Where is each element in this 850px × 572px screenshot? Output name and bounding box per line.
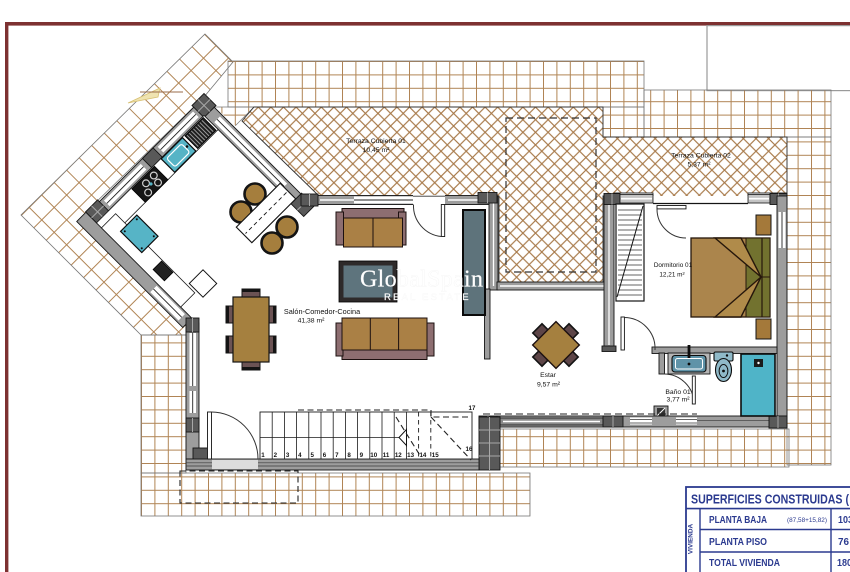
svg-text:180: 180 — [837, 558, 850, 569]
svg-text:Estar: Estar — [540, 372, 557, 379]
svg-text:8: 8 — [347, 452, 351, 459]
svg-text:PLANTA PISO: PLANTA PISO — [709, 537, 767, 548]
svg-text:11: 11 — [383, 452, 390, 459]
svg-text:9,57 m²: 9,57 m² — [537, 382, 561, 389]
svg-text:14: 14 — [419, 452, 426, 459]
svg-text:TOTAL VIVIENDA: TOTAL VIVIENDA — [709, 558, 780, 569]
svg-text:Dormitorio 01: Dormitorio 01 — [654, 262, 693, 269]
svg-text:1: 1 — [261, 452, 265, 459]
svg-text:7: 7 — [335, 452, 339, 459]
svg-text:12,21 m²: 12,21 m² — [659, 272, 684, 279]
svg-text:6: 6 — [323, 452, 327, 459]
svg-text:SUPERFICIES CONSTRUIDAS (: SUPERFICIES CONSTRUIDAS ( — [691, 492, 849, 507]
svg-text:5: 5 — [310, 452, 314, 459]
svg-text:Baño 01: Baño 01 — [665, 389, 691, 396]
svg-text:16: 16 — [466, 446, 473, 453]
svg-text:76: 76 — [838, 537, 849, 548]
svg-text:4: 4 — [298, 452, 302, 459]
svg-text:Terraza Cubierta 01: Terraza Cubierta 01 — [346, 138, 406, 145]
svg-text:13: 13 — [407, 452, 414, 459]
svg-text:5,37 m²: 5,37 m² — [687, 162, 711, 169]
svg-text:GlobalSpain: GlobalSpain — [360, 267, 483, 293]
svg-text:VIVIENDA: VIVIENDA — [688, 524, 695, 555]
svg-text:15: 15 — [432, 452, 439, 459]
svg-text:3,77 m²: 3,77 m² — [666, 397, 690, 404]
svg-text:12: 12 — [395, 452, 402, 459]
svg-text:10,45 m²: 10,45 m² — [363, 147, 391, 154]
svg-text:17: 17 — [469, 405, 476, 412]
svg-text:REAL ESTATE: REAL ESTATE — [384, 292, 471, 303]
svg-text:9: 9 — [360, 452, 364, 459]
svg-text:(87,58+15,82): (87,58+15,82) — [787, 517, 827, 524]
svg-text:PLANTA BAJA: PLANTA BAJA — [709, 515, 767, 526]
svg-text:103: 103 — [838, 515, 850, 526]
svg-text:41,38 m²: 41,38 m² — [298, 318, 326, 325]
svg-text:Salón-Comedor-Cocina: Salón-Comedor-Cocina — [284, 307, 361, 316]
svg-text:10: 10 — [370, 452, 377, 459]
svg-text:2: 2 — [274, 452, 278, 459]
svg-text:Terraza Cubierta 02: Terraza Cubierta 02 — [671, 153, 731, 160]
svg-text:3: 3 — [286, 452, 290, 459]
